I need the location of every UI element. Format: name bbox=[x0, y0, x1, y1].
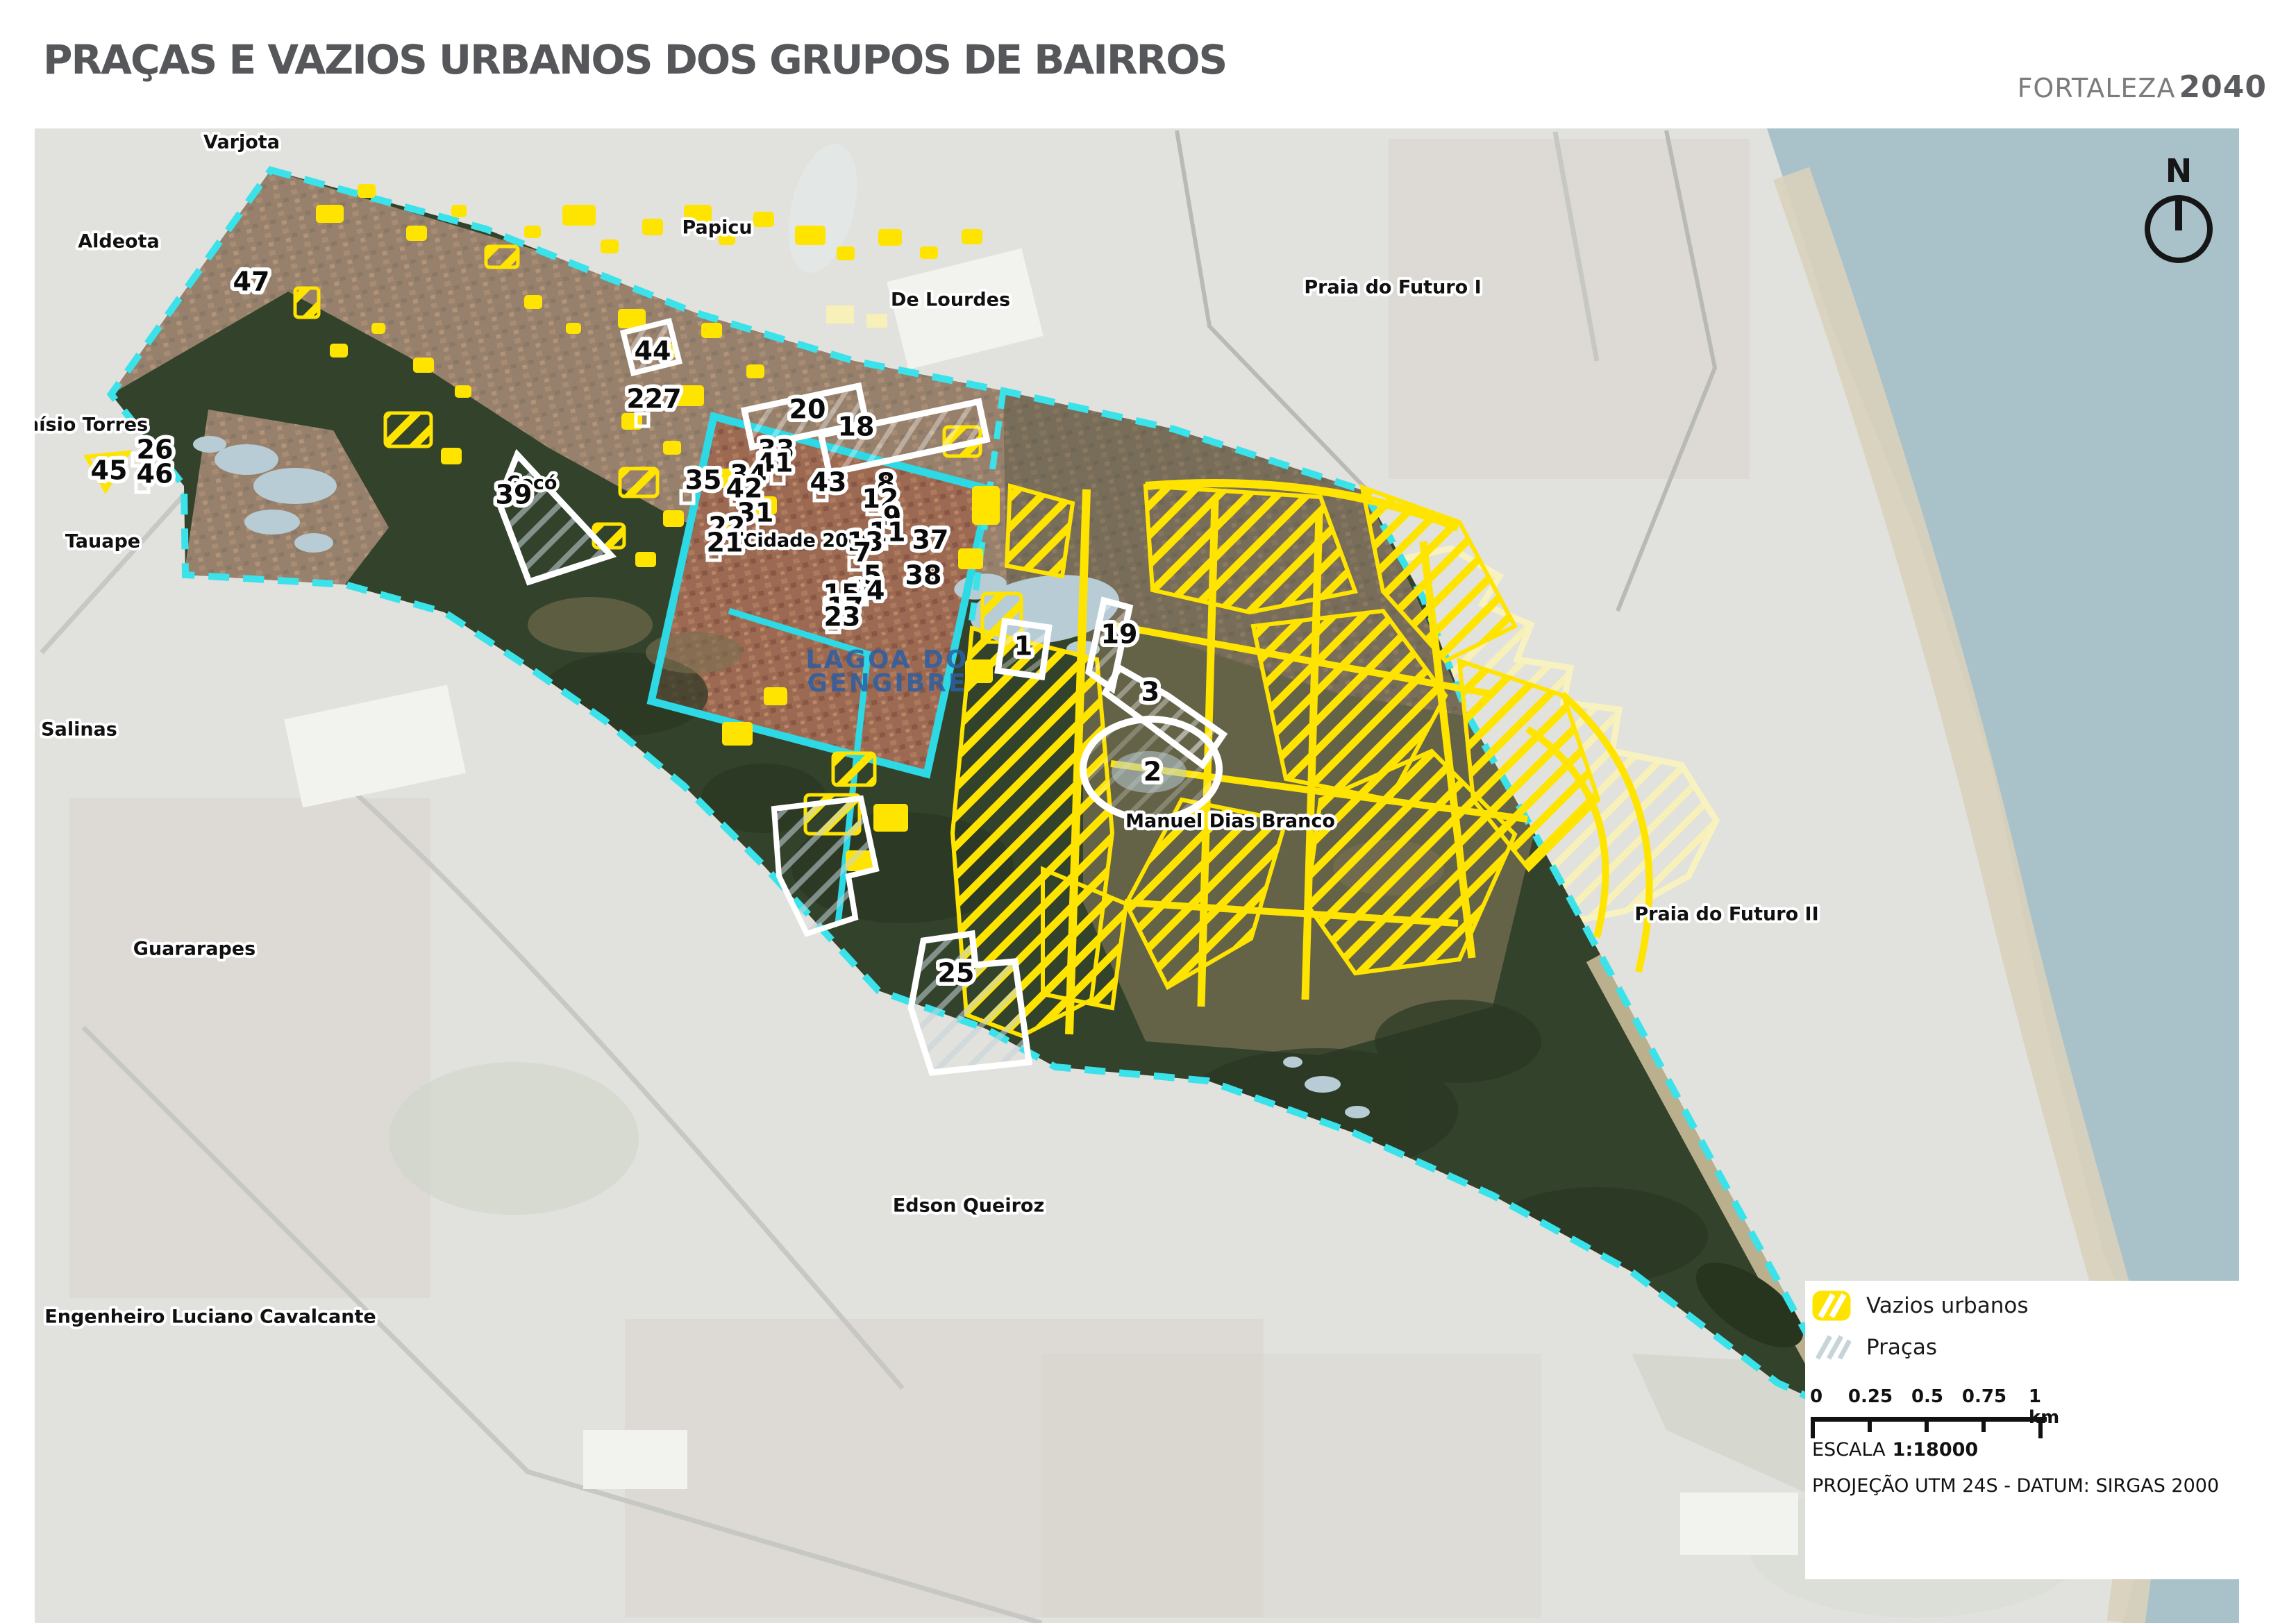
area-label: Manuel Dias Branco bbox=[1125, 811, 1335, 832]
neighborhood-label: Tauape bbox=[65, 531, 140, 553]
neighborhood-label: Salinas bbox=[41, 719, 117, 741]
scale-tick-025: 0.25 bbox=[1848, 1386, 1893, 1407]
legend-label-vazios: Vazios urbanos bbox=[1866, 1293, 2028, 1318]
scale-tick-05: 0.5 bbox=[1911, 1386, 1943, 1407]
legend: Vazios urbanos Praças 0 0.25 0.5 0.75 1 … bbox=[1805, 1281, 2296, 1579]
brand-name: FORTALEZA bbox=[2018, 73, 2176, 103]
water-label: GENGIBRE bbox=[807, 669, 968, 698]
scale-tick-075: 0.75 bbox=[1962, 1386, 2006, 1407]
scale-text: ESCALA1:18000 bbox=[1812, 1439, 1978, 1461]
number-marker: 3 bbox=[1141, 677, 1159, 707]
number-marker: 2 bbox=[1143, 757, 1162, 787]
neighborhood-label: Papicu bbox=[682, 217, 752, 239]
number-marker: 47 bbox=[233, 267, 270, 297]
number-marker: 25 bbox=[938, 958, 975, 989]
number-marker: 44 bbox=[635, 336, 671, 367]
legend-item-pracas: Praças bbox=[1812, 1332, 1937, 1363]
neighborhood-label: Guararapes bbox=[133, 939, 255, 960]
number-marker: 19 bbox=[1101, 619, 1138, 650]
legend-item-vazios-urbanos: Vazios urbanos bbox=[1812, 1290, 2028, 1321]
number-marker: 46 bbox=[137, 459, 174, 489]
neighborhood-label: Praia do Futuro II bbox=[1634, 904, 1818, 925]
page-title: PRAÇAS E VAZIOS URBANOS DOS GRUPOS DE BA… bbox=[43, 36, 1226, 83]
number-marker: 35 bbox=[685, 465, 722, 496]
scale-bar: 0 0.25 0.5 0.75 1 km bbox=[1811, 1386, 2047, 1440]
scale-caption: ESCALA bbox=[1812, 1439, 1886, 1461]
north-label: N bbox=[2165, 152, 2193, 190]
neighborhood-label: Engenheiro Luciano Cavalcante bbox=[44, 1306, 376, 1328]
number-marker: 21 bbox=[707, 528, 744, 558]
number-marker: 227 bbox=[626, 384, 681, 414]
brand-year: 2040 bbox=[2179, 69, 2267, 105]
scale-value: 1:18000 bbox=[1893, 1439, 1979, 1461]
neighborhood-label: Aldeota bbox=[78, 231, 159, 253]
number-marker: 20 bbox=[789, 394, 826, 425]
scale-bar-line bbox=[1811, 1417, 2047, 1440]
number-marker: 39 bbox=[496, 480, 533, 510]
number-marker: 18 bbox=[838, 412, 875, 442]
scale-tick-labels: 0 0.25 0.5 0.75 1 km bbox=[1811, 1386, 2047, 1411]
scale-tick-0: 0 bbox=[1810, 1386, 1822, 1407]
number-marker: 45 bbox=[91, 455, 128, 486]
pracas-swatch-icon bbox=[1812, 1332, 1851, 1363]
poster-page: { "header": { "title": "PRAÇAS E VAZIOS … bbox=[0, 0, 2296, 1623]
neighborhood-label: Varjota bbox=[203, 132, 280, 153]
number-marker: 37 bbox=[912, 525, 949, 555]
neighborhood-label: Praia do Futuro I bbox=[1304, 277, 1481, 298]
number-marker: 1 bbox=[1014, 631, 1032, 662]
number-marker: 23 bbox=[824, 602, 861, 632]
neighborhood-label: Edson Queiroz bbox=[893, 1195, 1044, 1217]
vazios-urbanos-swatch-icon bbox=[1812, 1290, 1851, 1321]
brand-logo: FORTALEZA 2040 bbox=[2018, 69, 2267, 105]
neighborhood-label: De Lourdes bbox=[891, 289, 1010, 311]
number-marker: 38 bbox=[905, 560, 942, 591]
number-marker: 43 bbox=[810, 467, 847, 498]
legend-label-pracas: Praças bbox=[1866, 1335, 1937, 1360]
projection-text: PROJEÇÃO UTM 24S - DATUM: SIRGAS 2000 bbox=[1812, 1475, 2219, 1497]
neighborhood-label: Dionísio Torres bbox=[35, 414, 148, 436]
